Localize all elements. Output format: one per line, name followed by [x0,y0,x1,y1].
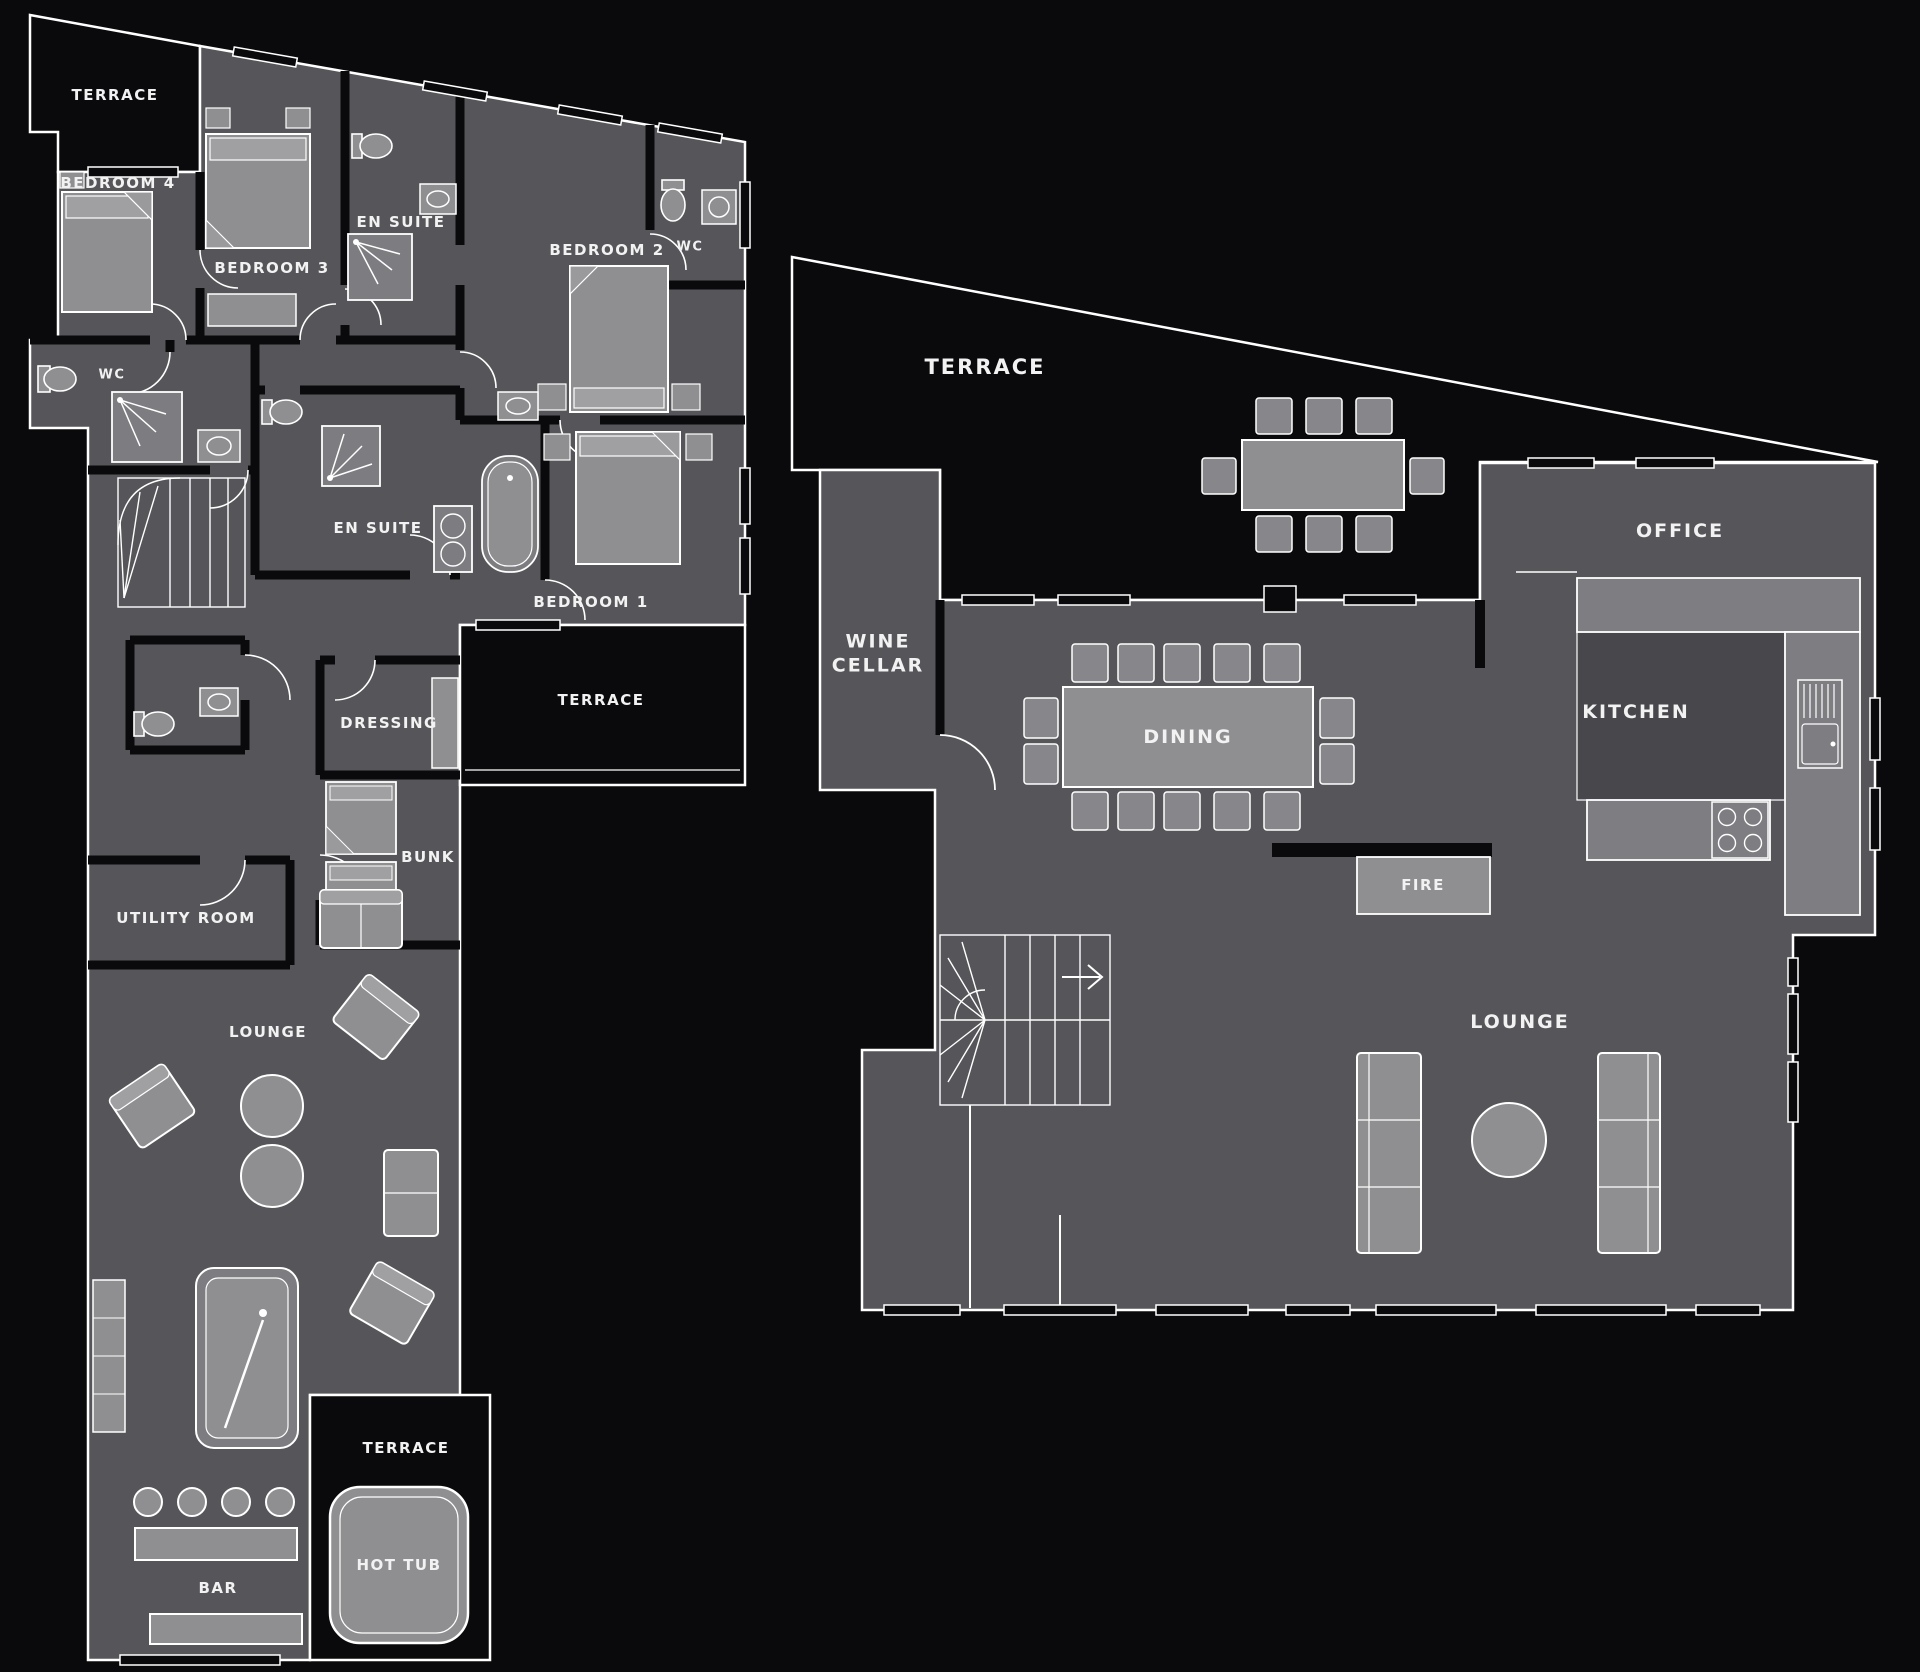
round-pouf-icon [241,1145,303,1207]
room-label-terrace-top: TERRACE [72,86,159,104]
room-label-wc-left: WC [99,368,126,383]
sofa-icon [320,890,402,948]
room-label-utility-room: UTILITY ROOM [116,909,255,927]
floorplan-drawing [0,0,1920,1672]
pool-table-icon [196,1268,298,1448]
floorplan-canvas: TERRACE BEDROOM 4 BEDROOM 3 EN SUITE BED… [0,0,1920,1672]
room-label-kitchen: KITCHEN [1582,701,1689,723]
room-label-bedroom-1: BEDROOM 1 [533,593,648,611]
washer-dryer-icon [434,506,472,572]
room-label-wc-top: WC [677,240,704,255]
room-label-terrace-right: TERRACE [924,355,1045,379]
room-label-lounge-right: LOUNGE [1470,1011,1570,1033]
sideboard-icon [93,1280,125,1432]
round-coffee-table-icon [1472,1103,1546,1177]
room-label-bunk: BUNK [401,848,455,866]
bathtub-icon [482,456,538,572]
sofa-icon [1357,1053,1421,1253]
room-label-office: OFFICE [1636,520,1724,542]
round-pouf-icon [241,1075,303,1137]
sofa-icon [1598,1053,1660,1253]
room-label-ensuite-top: EN SUITE [356,213,445,231]
room-label-bar: BAR [198,1579,237,1597]
room-label-lounge-left: LOUNGE [229,1023,307,1041]
room-label-bedroom-3: BEDROOM 3 [214,259,329,277]
room-label-wine-cellar: WINE CELLAR [818,630,938,678]
room-label-dressing: DRESSING [340,714,438,732]
bed-icon [206,108,310,326]
fireplace-wall [1272,843,1492,857]
room-label-hot-tub: HOT TUB [356,1556,441,1574]
bed-icon [60,172,152,312]
room-label-fire: FIRE [1401,876,1445,894]
room-label-ensuite-mid: EN SUITE [333,519,422,537]
room-label-bedroom-4: BEDROOM 4 [60,174,175,192]
sofa-icon [384,1150,438,1236]
room-label-dining: DINING [1143,726,1232,748]
room-label-bedroom-2: BEDROOM 2 [549,241,664,259]
room-label-terrace-bottom: TERRACE [363,1439,450,1457]
room-label-terrace-mid: TERRACE [558,691,645,709]
